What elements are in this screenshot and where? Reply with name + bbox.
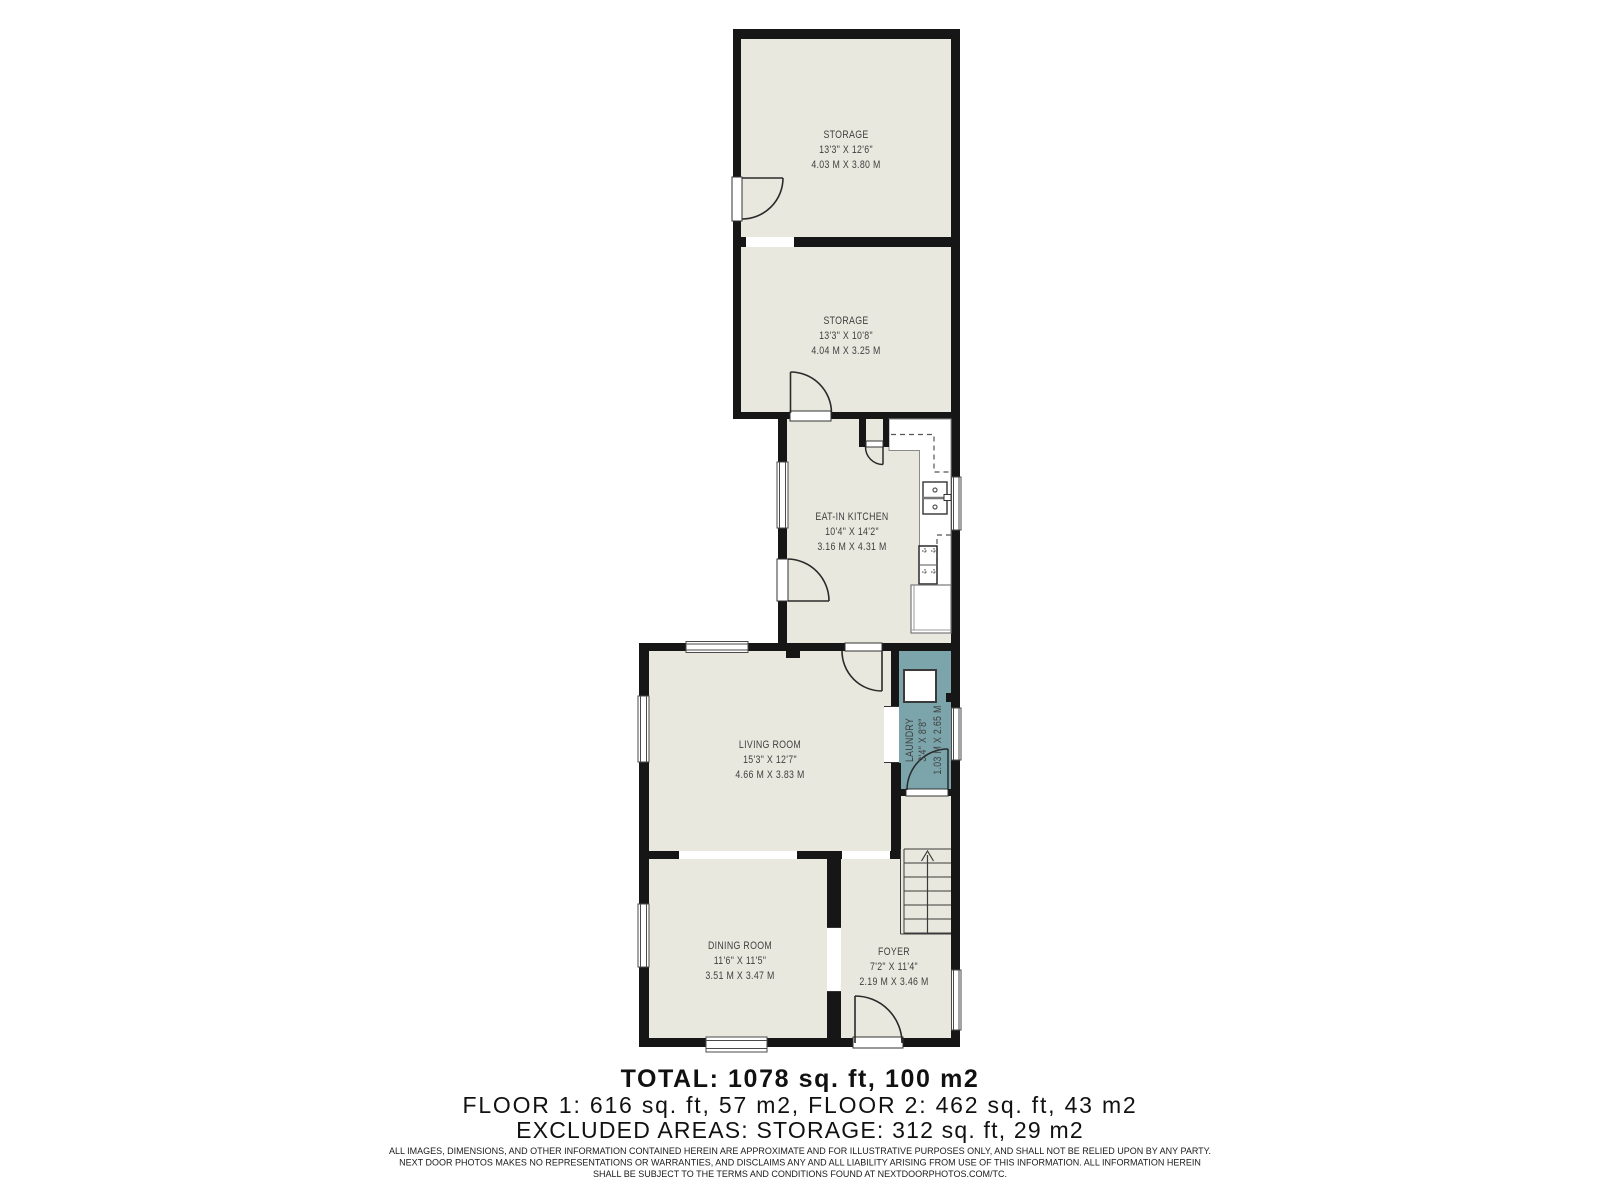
svg-text:4.04 M X 3.25 M: 4.04 M X 3.25 M: [811, 345, 880, 357]
svg-text:1.03 M X 2.65 M: 1.03 M X 2.65 M: [932, 705, 944, 774]
svg-text:13'3" X 12'6": 13'3" X 12'6": [819, 144, 873, 156]
svg-text:4.03 M X 3.80 M: 4.03 M X 3.80 M: [811, 159, 880, 171]
svg-text:7'2" X 11'4": 7'2" X 11'4": [870, 961, 918, 973]
svg-text:EXCLUDED AREAS: STORAGE: 312 s: EXCLUDED AREAS: STORAGE: 312 sq. ft, 29 …: [516, 1117, 1084, 1143]
svg-text:2.19 M X 3.46 M: 2.19 M X 3.46 M: [859, 976, 928, 988]
svg-text:3.51 M X 3.47 M: 3.51 M X 3.47 M: [705, 970, 774, 982]
svg-text:4.66 M X 3.83 M: 4.66 M X 3.83 M: [735, 769, 804, 781]
svg-text:DINING ROOM: DINING ROOM: [708, 940, 772, 952]
svg-text:10'4" X 14'2": 10'4" X 14'2": [825, 526, 879, 538]
svg-text:3.16 M X 4.31 M: 3.16 M X 4.31 M: [817, 541, 886, 553]
svg-text:STORAGE: STORAGE: [823, 315, 868, 327]
svg-text:STORAGE: STORAGE: [823, 129, 868, 141]
svg-text:NEXT DOOR PHOTOS MAKES NO REPR: NEXT DOOR PHOTOS MAKES NO REPRESENTATION…: [399, 1158, 1201, 1168]
svg-text:EAT-IN KITCHEN: EAT-IN KITCHEN: [815, 511, 888, 523]
svg-text:11'6" X 11'5": 11'6" X 11'5": [714, 955, 767, 967]
svg-text:FOYER: FOYER: [878, 946, 910, 958]
svg-text:15'3" X 12'7": 15'3" X 12'7": [743, 754, 797, 766]
svg-text:SHALL BE SUBJECT TO THE TERMS: SHALL BE SUBJECT TO THE TERMS AND CONDIT…: [593, 1169, 1007, 1179]
svg-text:3'4" X 8'8": 3'4" X 8'8": [917, 718, 929, 762]
svg-text:LIVING ROOM: LIVING ROOM: [739, 739, 801, 751]
svg-text:FLOOR 1: 616 sq. ft, 57 m2, FL: FLOOR 1: 616 sq. ft, 57 m2, FLOOR 2: 462…: [462, 1092, 1137, 1118]
svg-text:TOTAL: 1078 sq. ft, 100 m2: TOTAL: 1078 sq. ft, 100 m2: [621, 1065, 980, 1093]
svg-text:LAUNDRY: LAUNDRY: [904, 718, 916, 762]
svg-text:13'3" X 10'8": 13'3" X 10'8": [819, 330, 873, 342]
svg-text:ALL IMAGES, DIMENSIONS, AND OT: ALL IMAGES, DIMENSIONS, AND OTHER INFORM…: [389, 1146, 1211, 1156]
